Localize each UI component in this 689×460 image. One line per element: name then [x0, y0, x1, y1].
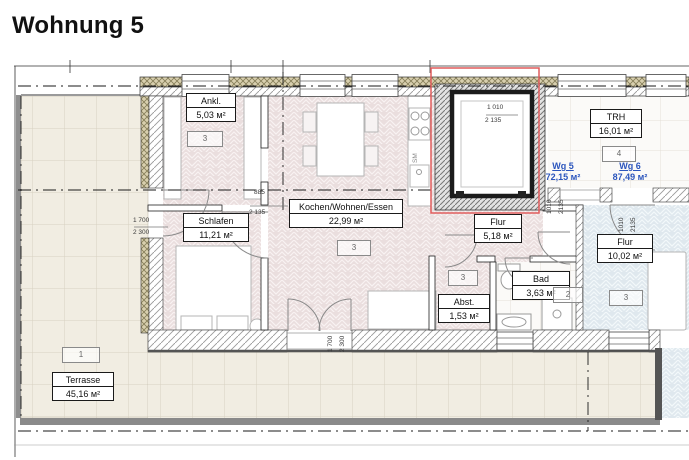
floor-type-badge: 3 [337, 240, 371, 256]
floor-type-badge: 2 [553, 287, 583, 303]
dimension-label: 2135 [558, 200, 565, 214]
room-label-flur-2: Flur 10,02 м² [597, 234, 653, 263]
dimension-label: 1 700 [327, 336, 334, 352]
wardrobe [244, 97, 261, 199]
room-label-kochen-wohnen-essen: Kochen/Wohnen/Essen 22,99 м² [289, 199, 403, 228]
pillow [181, 316, 212, 330]
dimension-label: 2 300 [339, 336, 346, 352]
floor-type-badge: 3 [187, 131, 223, 147]
dimension-label: 1010 [546, 200, 553, 214]
dimension-label: 2135 [630, 218, 637, 232]
dimension-label: 1 700 [133, 217, 149, 224]
room-label-schlafen: Schlafen 11,21 м² [183, 213, 249, 242]
kitchen-sink [410, 165, 429, 187]
dimension-label: 2 135 [249, 209, 265, 216]
room-label-ankleide: Ankl. 5,03 м² [186, 93, 236, 122]
room-label-terrasse: Terrasse 45,16 м² [52, 372, 114, 401]
floor-plan-page: Wohnung 5 [0, 0, 689, 460]
room-label-flur: Flur 5,18 м² [474, 214, 522, 243]
toilet-tank [498, 264, 520, 271]
dimension-label: 2 300 [133, 229, 149, 236]
chair [303, 146, 316, 166]
wardrobe [164, 97, 181, 199]
dimension-label: 1010 [618, 218, 625, 232]
dimension-label: 1 010 [487, 104, 503, 111]
floor-type-badge: 4 [602, 146, 636, 162]
chair [303, 112, 316, 132]
stairwell [435, 84, 545, 210]
dimension-label: 2 135 [485, 117, 501, 124]
sofa [368, 291, 436, 329]
floor-type-badge: 1 [62, 347, 100, 363]
room-label-trh: TRH 16,01 м² [590, 109, 642, 138]
dishwasher-label: SM [412, 153, 419, 163]
stair-flight [648, 252, 686, 330]
dimension-label: 885 [254, 189, 265, 196]
floor-type-badge: 3 [448, 270, 478, 286]
floor-type-badge: 3 [609, 290, 643, 306]
pillow [217, 316, 248, 330]
dining-table [317, 103, 364, 176]
chair [365, 146, 378, 166]
apartment-label-wg6: Wg 6 87,49 м² [602, 161, 658, 184]
chair [365, 112, 378, 132]
room-label-abstellraum: Abst. 1,53 м² [438, 294, 490, 323]
apartment-label-wg5: Wg 5 72,15 м² [536, 161, 590, 184]
